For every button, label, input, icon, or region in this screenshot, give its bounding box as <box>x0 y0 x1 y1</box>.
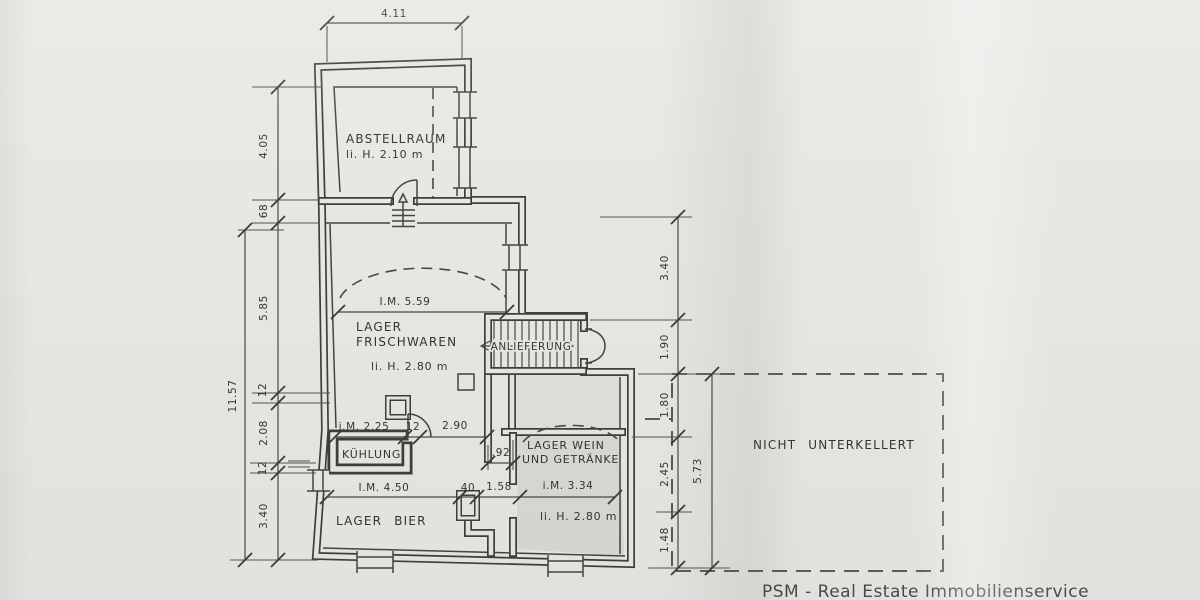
dim-wein-width: i.M. 3.34 <box>543 480 594 492</box>
dim-right-0: 3.40 <box>659 255 671 281</box>
room-label-bier: LAGER BIER <box>336 514 427 528</box>
dim-right-3: 2.45 <box>659 461 671 487</box>
dim-left-total: 11.57 <box>227 379 239 412</box>
dim-kuehlung-wall: 12 <box>406 421 421 433</box>
column <box>458 374 474 390</box>
dim-right-1: 1.90 <box>659 334 671 360</box>
room-label-frischwaren-2: FRISCHWAREN <box>356 335 457 349</box>
dim-delivery-width: .92 <box>492 447 511 459</box>
room-height-wein: li. H. 2.80 m <box>540 510 617 523</box>
dim-top-width: 4.11 <box>381 8 407 20</box>
dim-left-4: 2.08 <box>258 420 270 446</box>
floor-plan-drawing: 4.11 ABSTELLRAUM li. H. 2.10 m LAGER FRI… <box>0 0 1200 600</box>
dim-left-2: 5.85 <box>258 295 270 321</box>
dim-left-0: 4.05 <box>258 133 270 159</box>
delivery-double-door <box>585 329 605 363</box>
dim-opening-width: 1.58 <box>486 481 512 493</box>
room-label-abstellraum: ABSTELLRAUM <box>346 132 447 146</box>
labels: 4.11 ABSTELLRAUM li. H. 2.10 m LAGER FRI… <box>227 8 1089 600</box>
dim-right-2: 1.80 <box>659 392 671 418</box>
room-label-anlieferung: ANLIEFERUNG <box>491 341 572 353</box>
dim-left-3: 12 <box>257 383 269 398</box>
room-height-abstellraum: li. H. 2.10 m <box>346 148 423 161</box>
dim-frischwaren-width: I.M. 5.59 <box>380 296 431 308</box>
scanned-floor-plan-page: 4.11 ABSTELLRAUM li. H. 2.10 m LAGER FRI… <box>0 0 1200 600</box>
dim-bier-width: I.M. 4.50 <box>359 482 410 494</box>
footer-branding: PSM - Real Estate Immobilienservice <box>762 582 1089 600</box>
room-label-kuehlung: KÜHLUNG <box>342 448 401 461</box>
dim-left-1: 68 <box>258 204 270 219</box>
dim-right-total: 5.73 <box>692 458 704 484</box>
room-shading <box>517 376 624 556</box>
dim-passage-width: 2.90 <box>442 420 468 432</box>
room-height-frischwaren: li. H. 2.80 m <box>371 360 448 373</box>
area-label-nicht-unterkellert: NICHT UNTERKELLERT <box>753 438 915 452</box>
dim-left-6: 3.40 <box>258 503 270 529</box>
room-label-wein-1: LAGER WEIN <box>527 439 605 452</box>
dim-left-5: 12 <box>257 461 269 476</box>
dim-right-4: 1.48 <box>659 527 671 553</box>
room-label-wein-2: UND GETRÄNKE <box>522 453 619 466</box>
dim-pillar-width: 40 <box>461 482 476 494</box>
dashed-swing-frischwaren <box>340 268 506 298</box>
nicht-unterkellert-boundary <box>645 374 943 571</box>
room-label-frischwaren-1: LAGER <box>356 320 402 334</box>
internal-steps <box>392 194 415 227</box>
dim-kuehlung-width: i.M. 2.25 <box>339 421 390 433</box>
